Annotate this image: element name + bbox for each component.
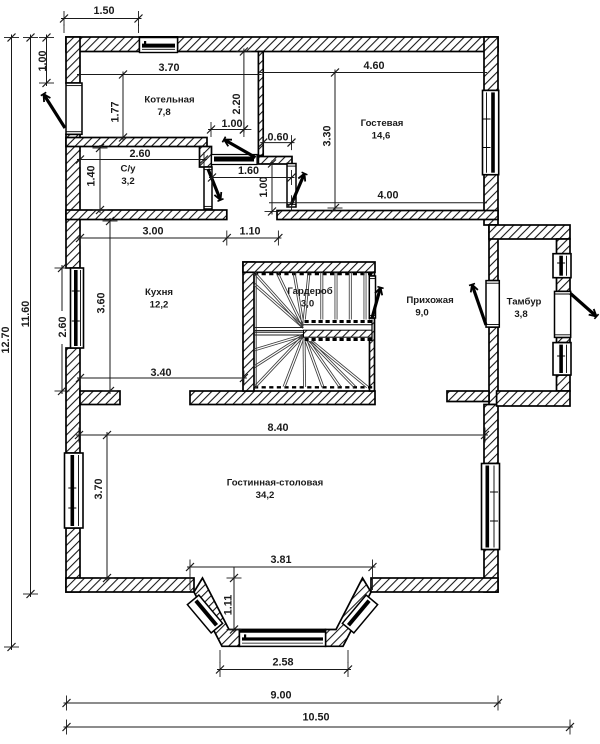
- svg-text:1.00: 1.00: [221, 118, 242, 130]
- svg-text:1.11: 1.11: [223, 595, 235, 615]
- svg-text:8.40: 8.40: [267, 422, 288, 434]
- svg-text:3.40: 3.40: [150, 367, 171, 379]
- svg-text:Гардероб: Гардероб: [287, 286, 332, 297]
- svg-text:3.70: 3.70: [93, 478, 105, 499]
- svg-text:3.70: 3.70: [158, 62, 179, 74]
- svg-text:Котельная: Котельная: [144, 95, 194, 106]
- svg-text:3.81: 3.81: [270, 554, 291, 566]
- svg-text:3,2: 3,2: [121, 176, 134, 187]
- svg-text:Тамбур: Тамбур: [507, 297, 542, 308]
- svg-text:1.00: 1.00: [37, 50, 49, 71]
- svg-text:9.00: 9.00: [270, 690, 291, 702]
- svg-text:1.00: 1.00: [258, 176, 270, 197]
- svg-text:1.77: 1.77: [110, 101, 122, 122]
- svg-text:3.00: 3.00: [142, 226, 163, 238]
- svg-text:2.20: 2.20: [231, 93, 243, 114]
- svg-text:34,2: 34,2: [256, 490, 275, 501]
- svg-text:2.60: 2.60: [57, 316, 69, 337]
- svg-text:2.60: 2.60: [129, 148, 150, 160]
- svg-text:11.60: 11.60: [20, 301, 32, 327]
- svg-text:Прихожая: Прихожая: [406, 295, 453, 306]
- svg-text:12.70: 12.70: [0, 326, 12, 353]
- svg-text:1.40: 1.40: [86, 165, 98, 186]
- svg-text:1.50: 1.50: [93, 5, 114, 17]
- svg-text:1.10: 1.10: [239, 226, 260, 238]
- svg-text:4.60: 4.60: [363, 60, 384, 72]
- svg-text:Кухня: Кухня: [145, 287, 173, 298]
- svg-text:2.58: 2.58: [272, 657, 293, 669]
- svg-text:3.60: 3.60: [96, 292, 108, 313]
- svg-text:14,6: 14,6: [372, 131, 391, 142]
- svg-text:3,0: 3,0: [301, 299, 314, 310]
- svg-text:0.60: 0.60: [267, 132, 288, 144]
- svg-text:12,2: 12,2: [150, 300, 169, 311]
- svg-text:Гостевая: Гостевая: [361, 118, 404, 129]
- svg-text:4.00: 4.00: [377, 190, 398, 202]
- svg-text:7,8: 7,8: [157, 107, 171, 118]
- svg-text:9,0: 9,0: [415, 308, 428, 319]
- svg-text:3.30: 3.30: [322, 125, 334, 146]
- svg-text:3,8: 3,8: [514, 309, 528, 320]
- svg-text:1.60: 1.60: [238, 165, 259, 177]
- svg-text:Гостинная-столовая: Гостинная-столовая: [227, 478, 323, 489]
- svg-text:С/у: С/у: [121, 164, 137, 175]
- svg-text:10.50: 10.50: [302, 712, 329, 724]
